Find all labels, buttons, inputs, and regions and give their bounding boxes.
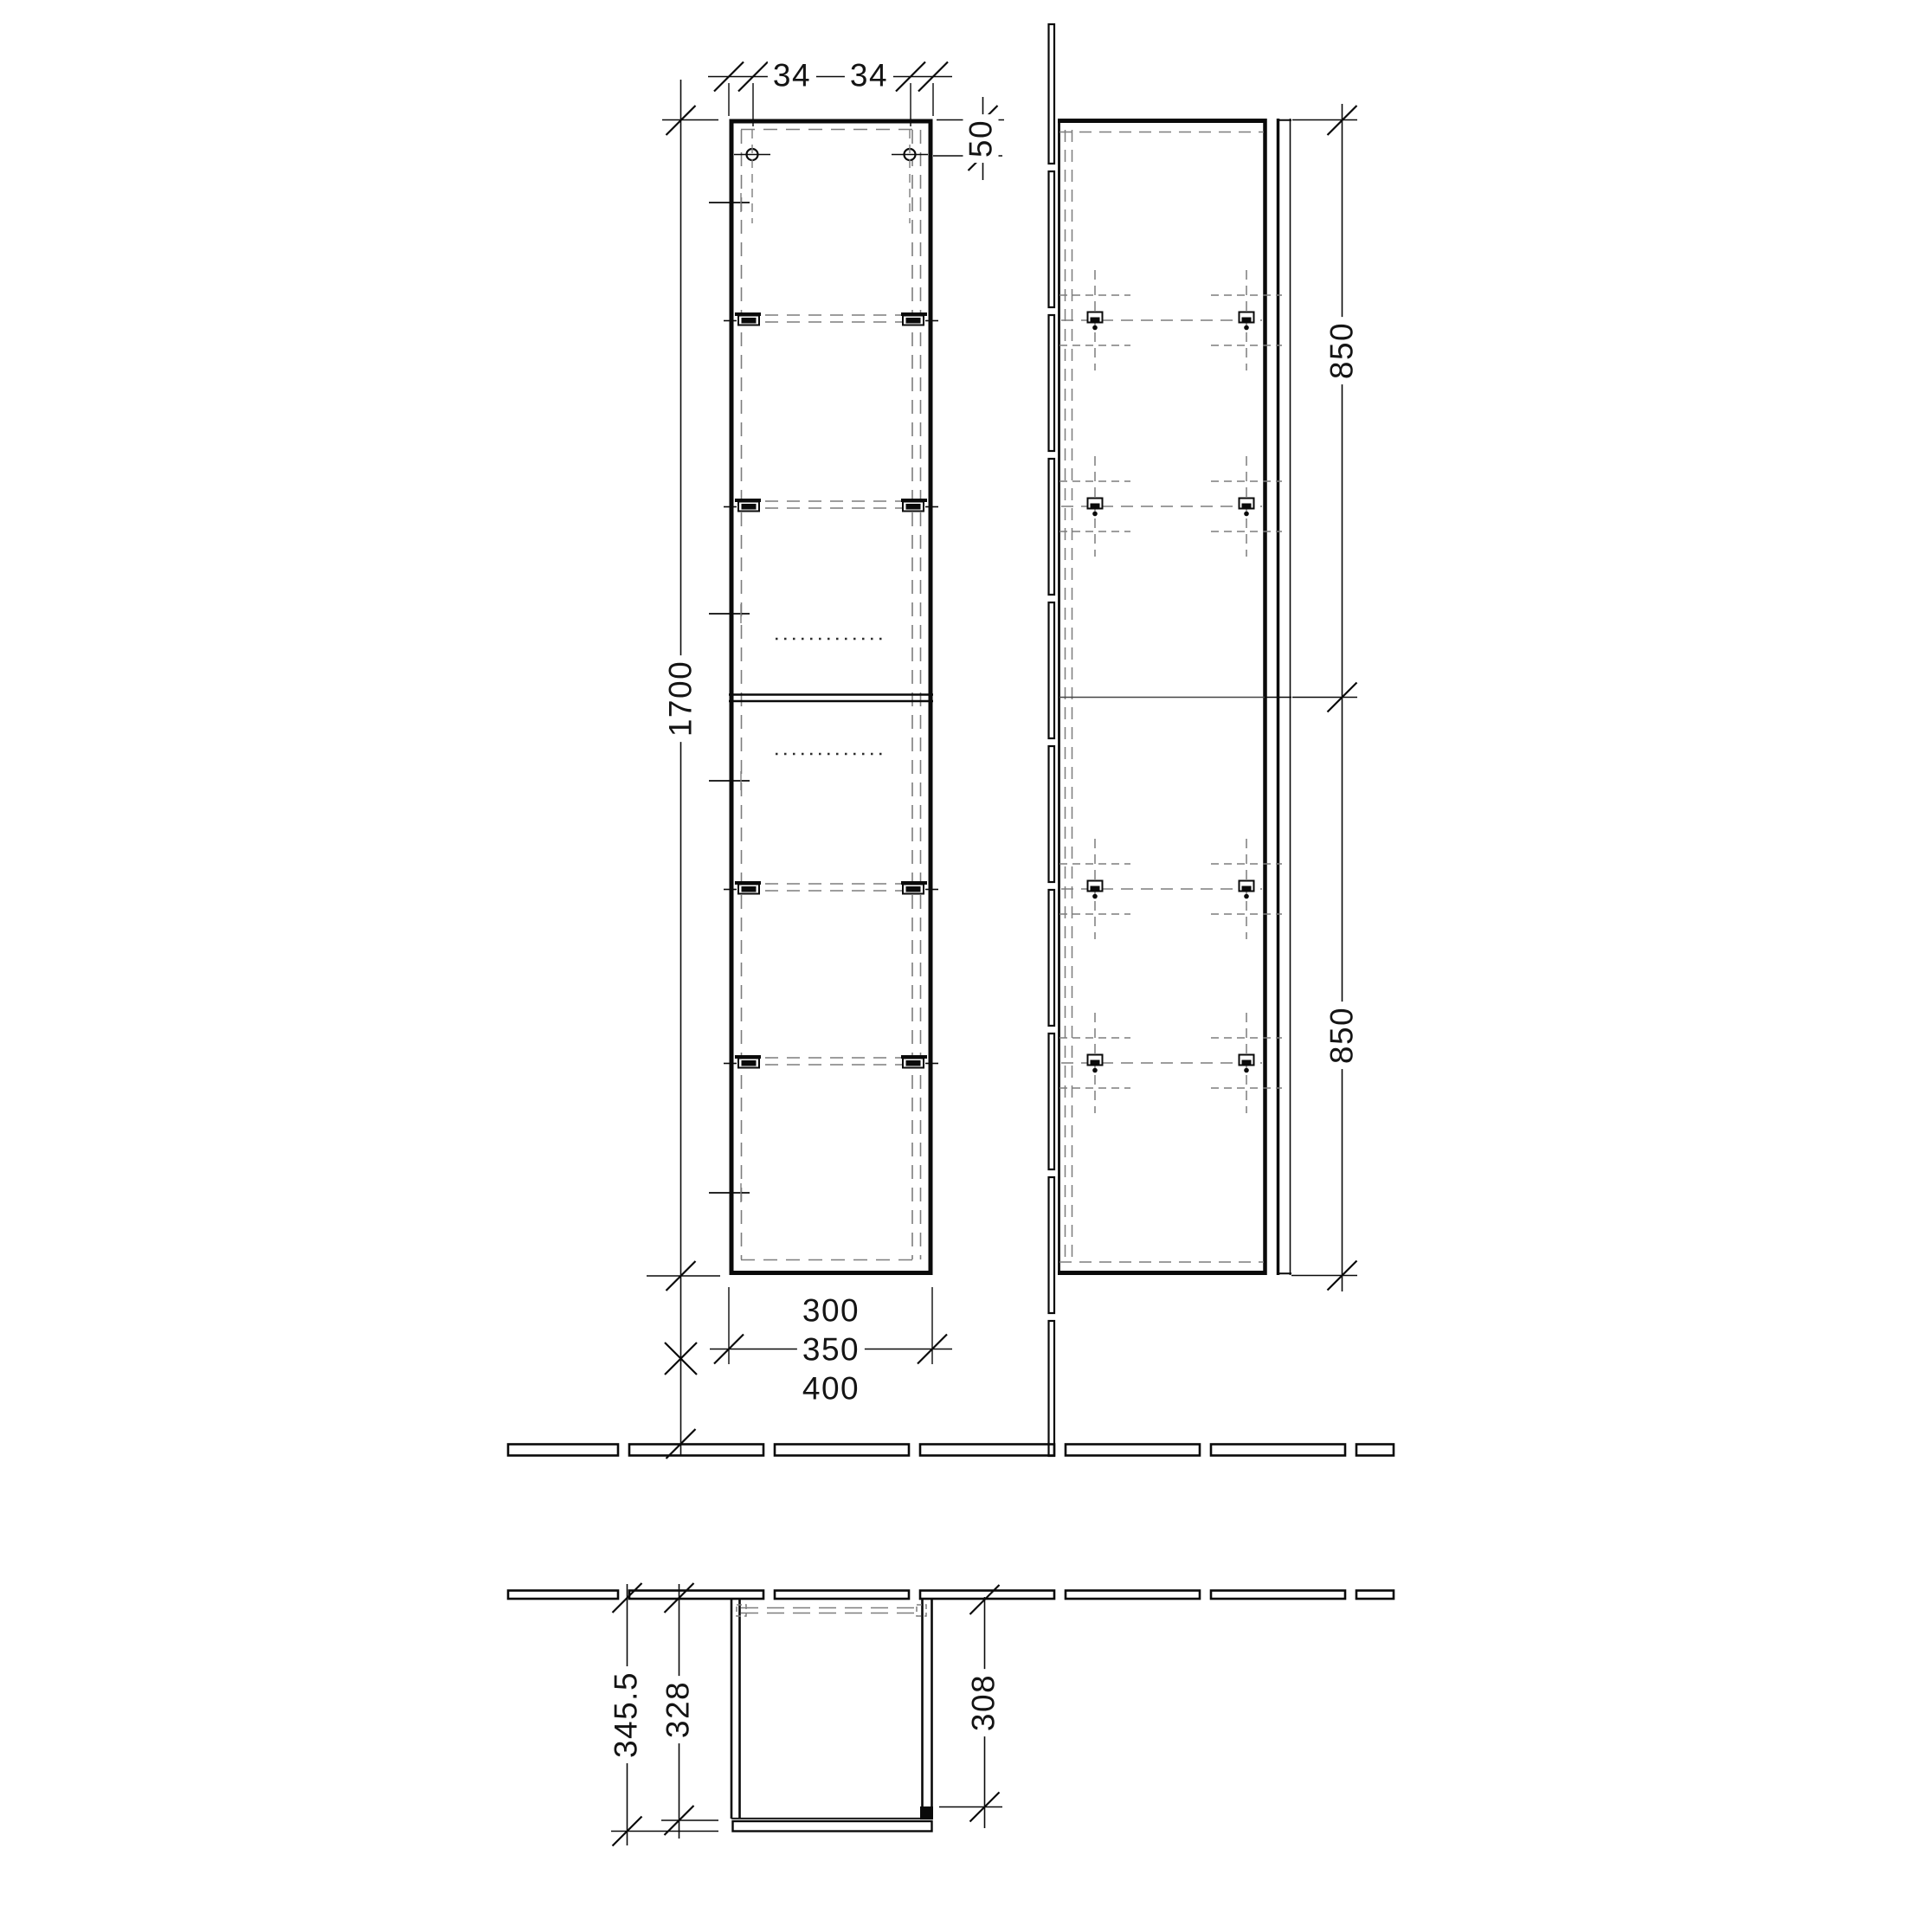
dim-label-depth-body: 328: [660, 1676, 696, 1743]
dim-label-depth-overall: 345.5: [609, 1666, 644, 1763]
dim-label-hinge-offset-right: 34: [845, 58, 893, 93]
dim-label-mounting-span-lower: 850: [1324, 1001, 1360, 1069]
dim-label-hole-top-offset: 50: [963, 114, 999, 163]
dim-label-width-option-300: 300: [797, 1293, 865, 1329]
dimension-labels: 34 34 50 1700 300 350 400 850 850 345.5 …: [0, 0, 1932, 1932]
dim-label-depth-clearance: 308: [966, 1669, 1001, 1736]
dim-label-mounting-span-upper: 850: [1324, 317, 1360, 384]
dim-label-cabinet-height: 1700: [663, 655, 699, 742]
dim-label-width-option-400: 400: [797, 1371, 865, 1407]
dim-label-width-option-350: 350: [797, 1332, 865, 1368]
technical-drawing-sheet: 34 34 50 1700 300 350 400 850 850 345.5 …: [0, 0, 1932, 1932]
dim-label-hinge-offset-left: 34: [768, 58, 816, 93]
